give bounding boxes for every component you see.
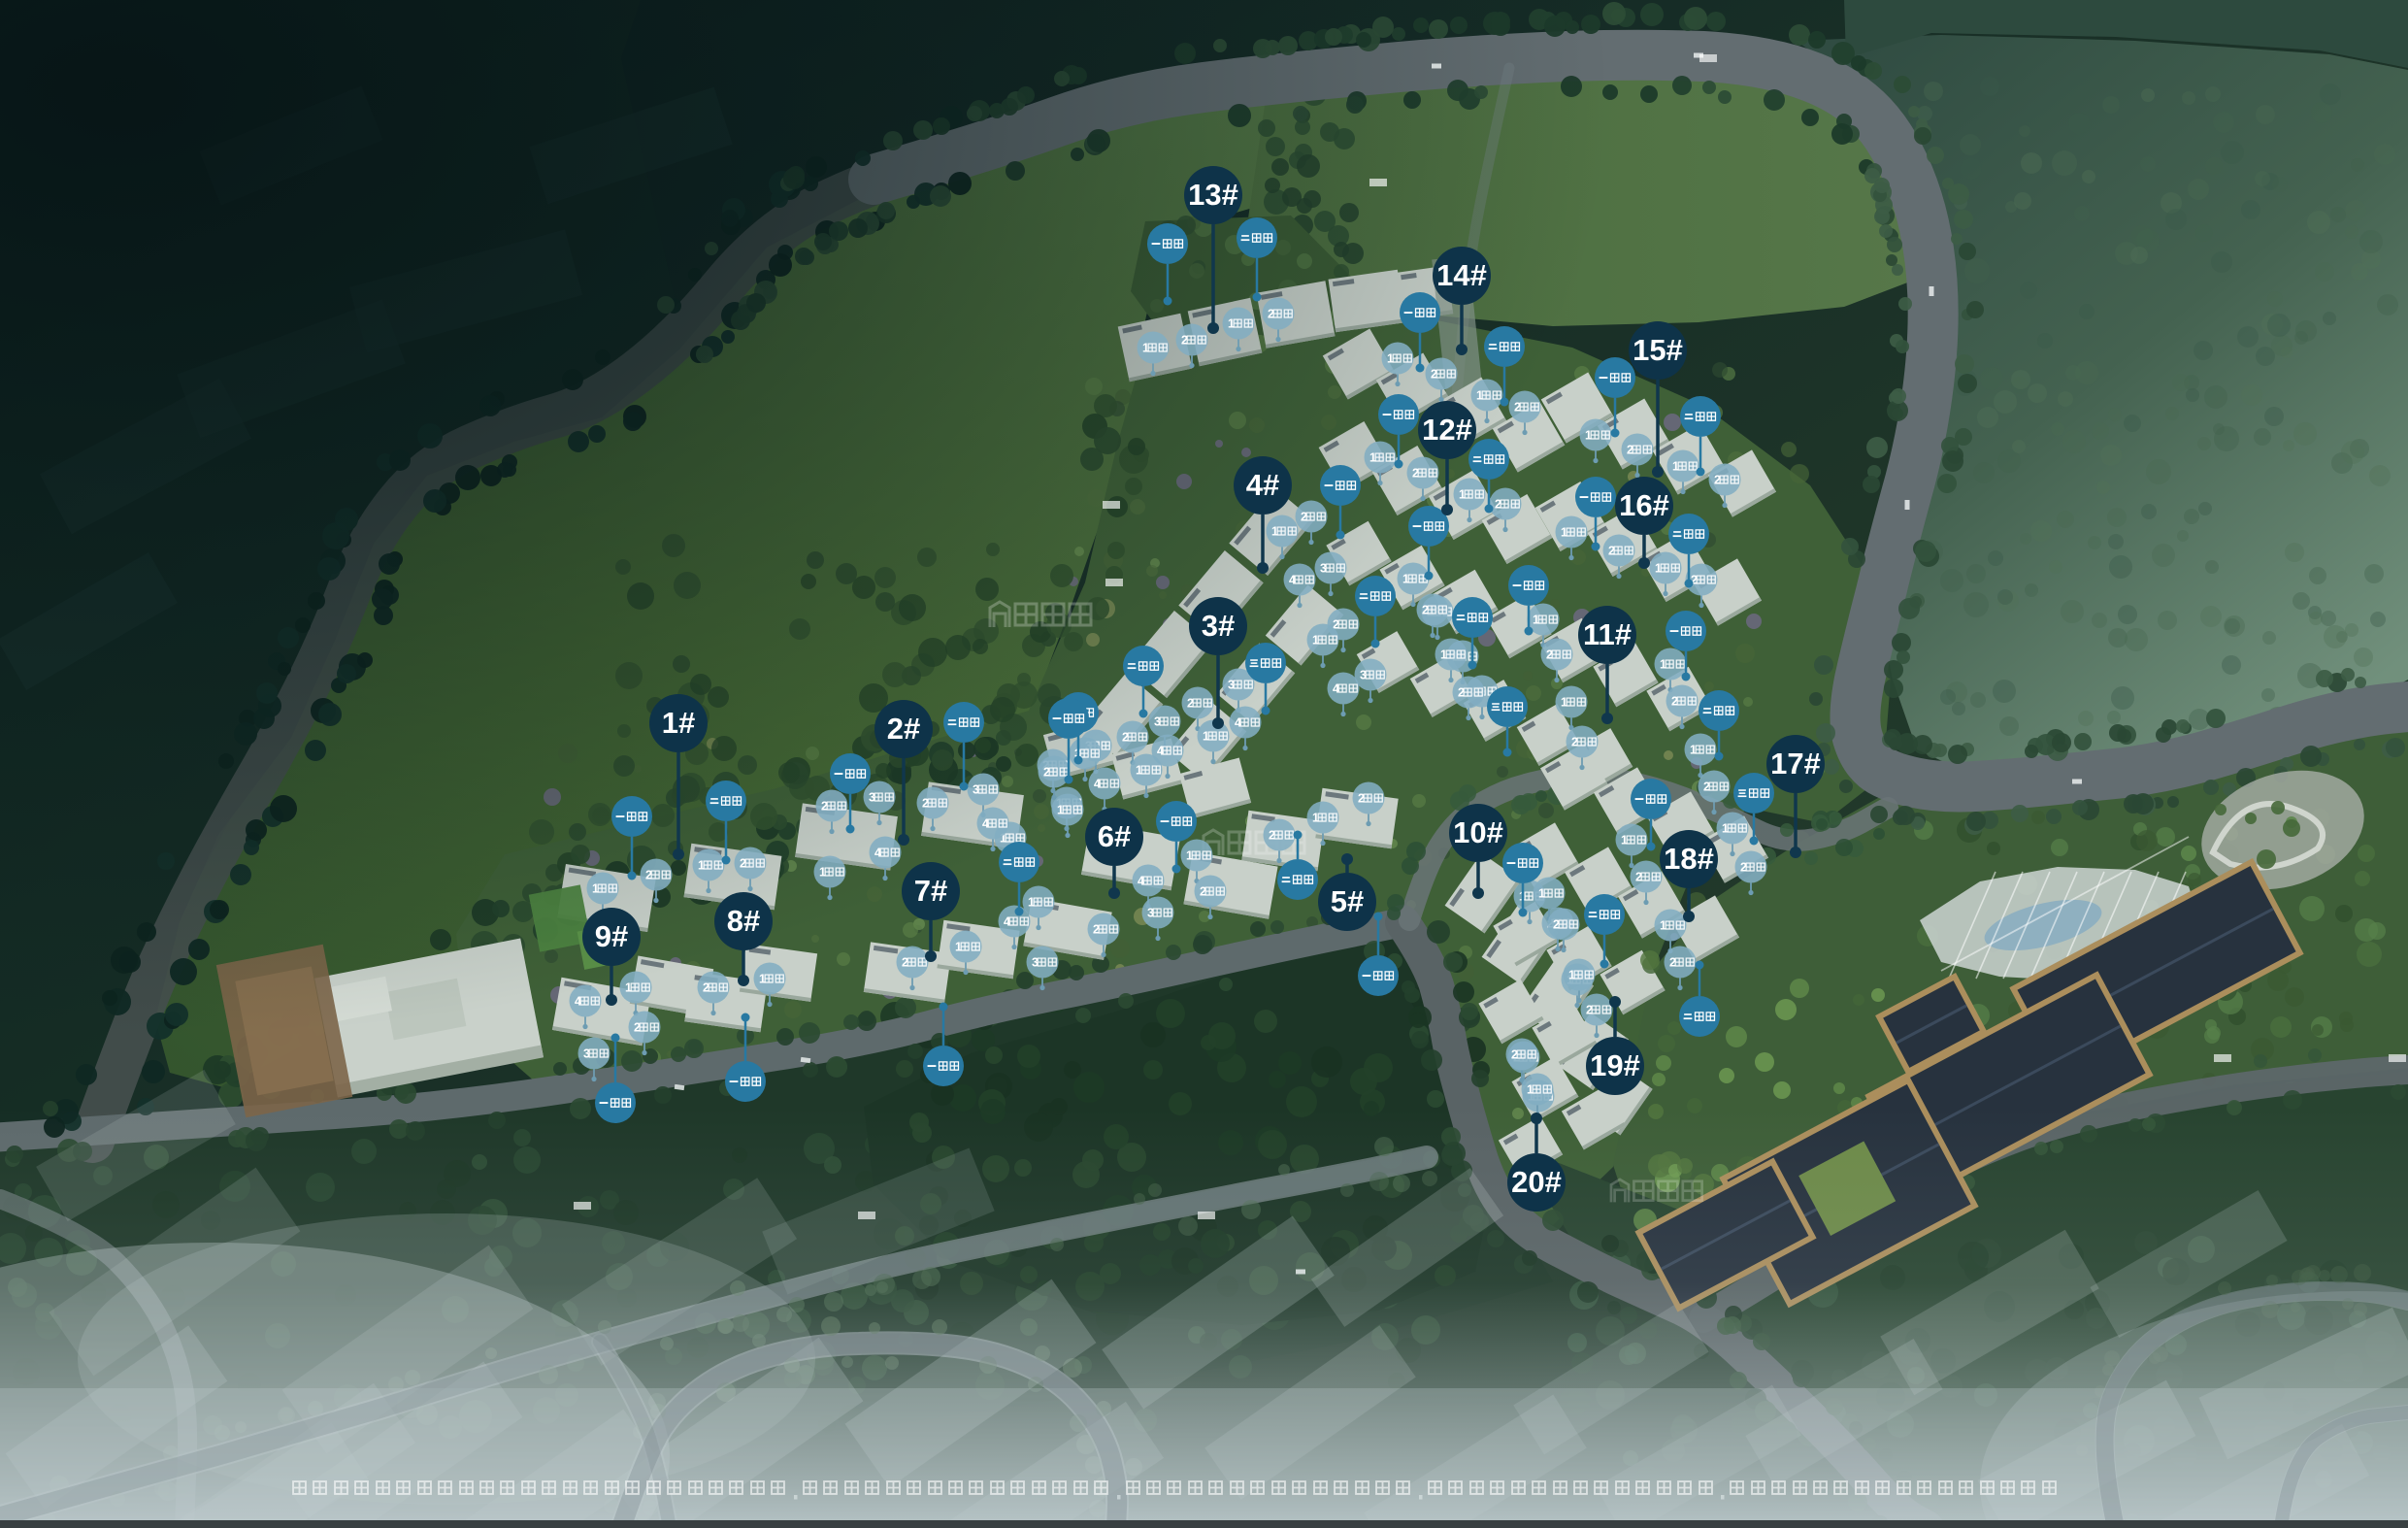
svg-text:14#: 14# — [1436, 258, 1487, 292]
svg-text:20#: 20# — [1511, 1165, 1562, 1199]
svg-text:19#: 19# — [1590, 1048, 1640, 1082]
svg-text:9#: 9# — [595, 919, 628, 953]
svg-text:11#: 11# — [1583, 617, 1632, 651]
svg-text:17#: 17# — [1770, 747, 1821, 781]
svg-text:10#: 10# — [1453, 815, 1503, 849]
svg-text:13#: 13# — [1188, 178, 1238, 212]
svg-text:3#: 3# — [1202, 609, 1235, 643]
svg-text:5#: 5# — [1331, 884, 1364, 918]
svg-text:6#: 6# — [1098, 819, 1131, 853]
svg-text:1#: 1# — [662, 706, 695, 740]
svg-text:15#: 15# — [1633, 333, 1683, 367]
svg-text:7#: 7# — [914, 874, 947, 908]
svg-text:16#: 16# — [1619, 488, 1669, 522]
svg-text:4#: 4# — [1246, 468, 1279, 502]
svg-text:8#: 8# — [727, 904, 760, 938]
svg-text:18#: 18# — [1664, 842, 1714, 876]
svg-text:12#: 12# — [1422, 413, 1472, 447]
svg-text:2#: 2# — [887, 712, 920, 746]
